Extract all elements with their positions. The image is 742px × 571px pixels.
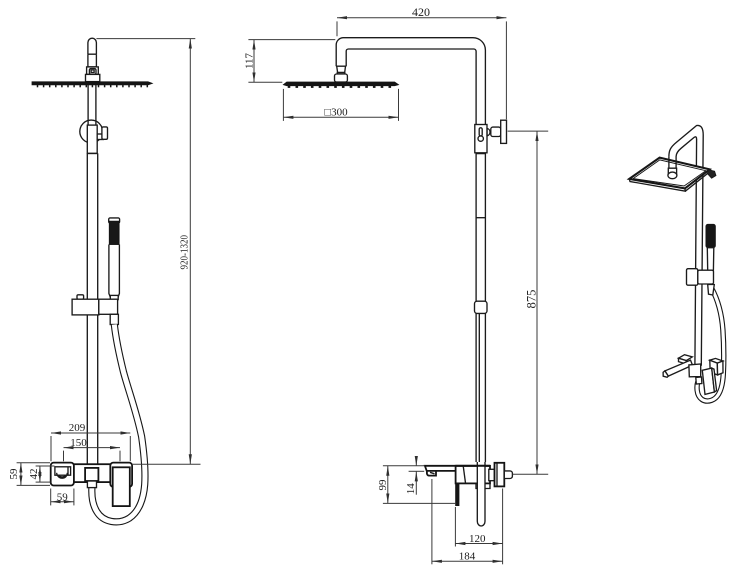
svg-text:184: 184 [459,551,476,563]
svg-text:42: 42 [28,469,40,480]
svg-text:117: 117 [244,52,256,69]
svg-text:875: 875 [524,290,538,309]
svg-text:209: 209 [69,422,86,434]
svg-text:99: 99 [377,479,389,491]
svg-text:□300: □300 [324,107,348,119]
svg-text:14: 14 [405,483,417,495]
svg-text:150: 150 [70,437,87,449]
svg-text:59: 59 [8,468,20,480]
svg-text:59: 59 [57,491,69,503]
svg-text:420: 420 [412,5,430,19]
svg-text:120: 120 [469,533,486,545]
svg-text:920-1320: 920-1320 [179,235,190,269]
